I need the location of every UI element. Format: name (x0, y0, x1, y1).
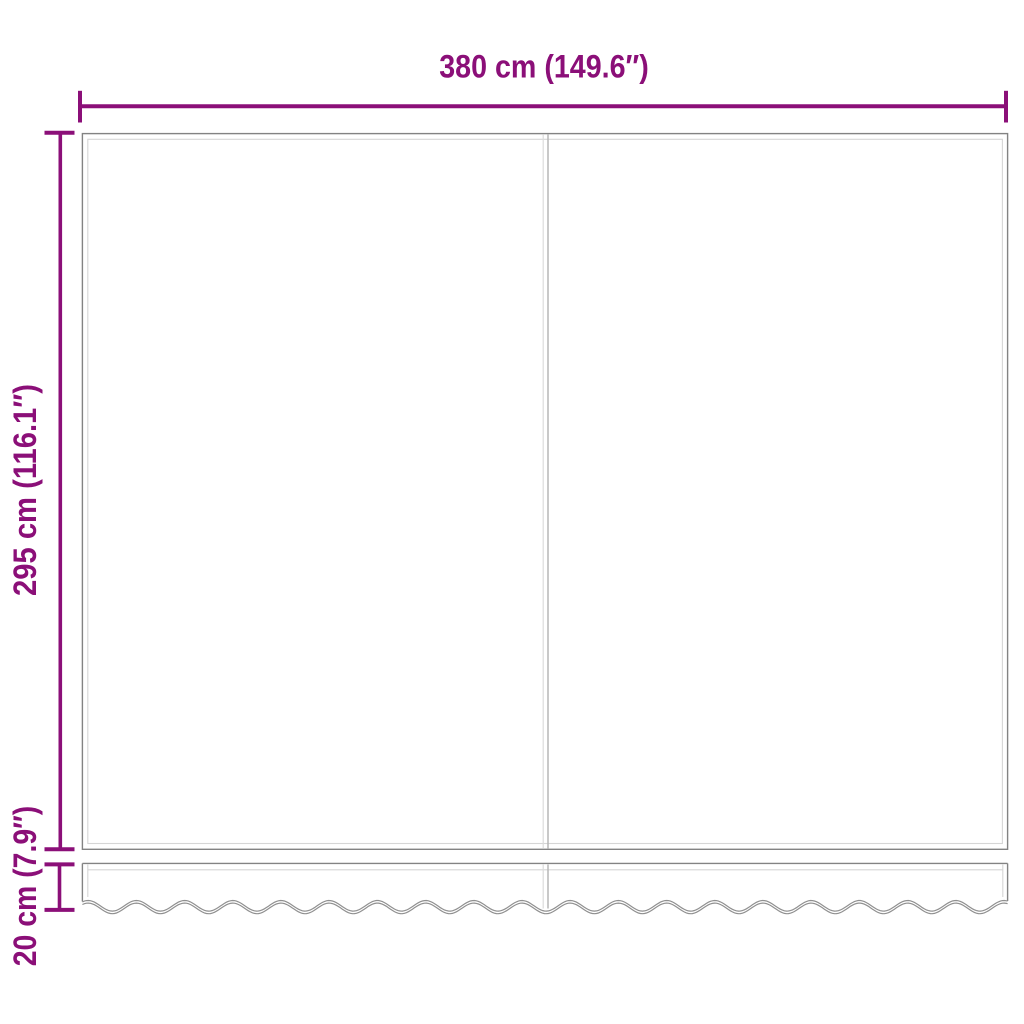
svg-text:20 cm (7.9″): 20 cm (7.9″) (7, 806, 43, 967)
svg-text:380 cm (149.6″): 380 cm (149.6″) (439, 49, 649, 85)
svg-text:295 cm (116.1″): 295 cm (116.1″) (7, 384, 43, 596)
